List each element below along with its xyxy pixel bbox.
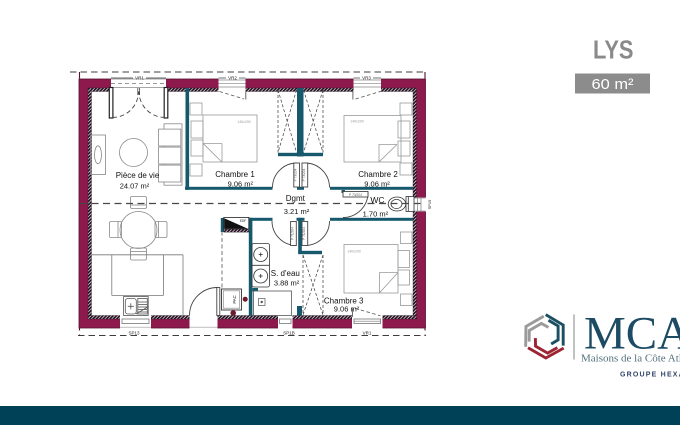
svg-text:SP19: SP19 xyxy=(427,199,432,210)
svg-text:140x200: 140x200 xyxy=(347,250,360,254)
svg-text:VR1: VR1 xyxy=(135,76,144,81)
svg-text:SP1B: SP1B xyxy=(283,331,295,336)
svg-text:3.21 m²: 3.21 m² xyxy=(284,207,310,216)
svg-text:24.07 m²: 24.07 m² xyxy=(120,182,150,191)
svg-text:9.06 m²: 9.06 m² xyxy=(364,180,390,189)
svg-text:Maisons de la Côte Atlantique: Maisons de la Côte Atlantique xyxy=(581,353,680,365)
svg-text:Chambre 2: Chambre 2 xyxy=(358,170,398,179)
svg-text:Chambre 1: Chambre 1 xyxy=(215,170,255,179)
svg-text:1.70 m²: 1.70 m² xyxy=(363,209,389,218)
svg-text:140x200: 140x200 xyxy=(350,120,363,124)
svg-text:LYS: LYS xyxy=(593,35,634,65)
svg-text:3.88 m²: 3.88 m² xyxy=(274,279,300,288)
svg-text:GROUPE HEXAOM: GROUPE HEXAOM xyxy=(620,371,680,378)
svg-text:VR2: VR2 xyxy=(228,76,237,81)
svg-text:9.06 m²: 9.06 m² xyxy=(228,180,254,189)
svg-text:P 71/204: P 71/204 xyxy=(302,227,306,240)
svg-text:P 71/204: P 71/204 xyxy=(290,227,294,240)
svg-text:60 m²: 60 m² xyxy=(592,76,634,93)
svg-text:PAC: PAC xyxy=(232,295,237,303)
svg-text:SP13: SP13 xyxy=(128,331,140,336)
svg-text:P 73/204: P 73/204 xyxy=(294,168,298,181)
svg-text:EDF: EDF xyxy=(240,219,246,223)
svg-text:P 73/204: P 73/204 xyxy=(302,168,306,181)
svg-text:Pièce de vie: Pièce de vie xyxy=(116,171,160,180)
svg-text:Dgmt: Dgmt xyxy=(286,194,306,203)
svg-text:VR3: VR3 xyxy=(362,76,371,81)
svg-text:P 73/204: P 73/204 xyxy=(349,193,362,197)
svg-text:140x200: 140x200 xyxy=(237,120,250,124)
svg-text:S. d'eau: S. d'eau xyxy=(271,269,300,278)
svg-text:WC: WC xyxy=(370,195,384,205)
svg-text:9.06 m²: 9.06 m² xyxy=(334,305,360,314)
svg-text:VR1: VR1 xyxy=(363,331,372,336)
